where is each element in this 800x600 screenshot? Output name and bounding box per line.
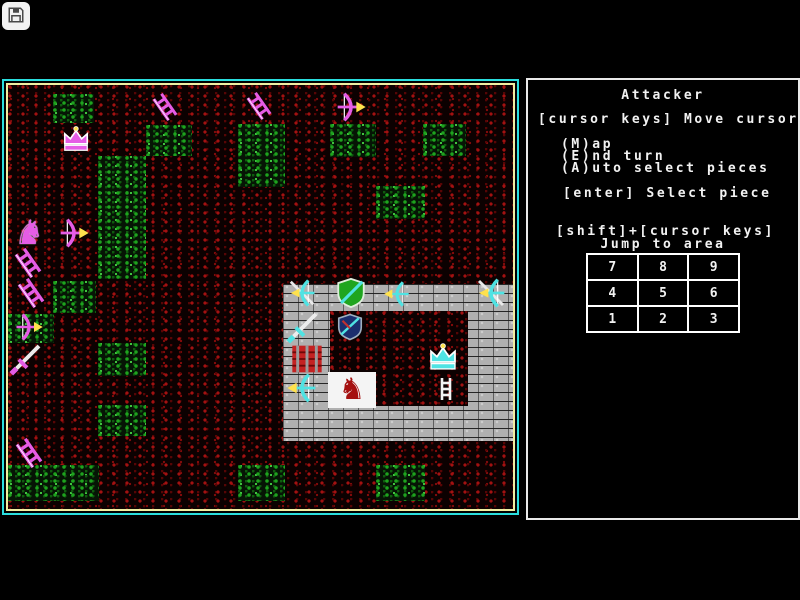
- screen: { "overlay": { "save_icon": "floppy-disk…: [0, 0, 800, 600]
- terrain-grass-patch: [98, 156, 146, 279]
- panel-title: Attacker: [528, 88, 798, 103]
- piece-ladderwhite-defender[interactable]: [434, 373, 458, 405]
- hint-select-piece: [enter] Select piece: [563, 186, 772, 201]
- piece-crown-attacker[interactable]: [56, 125, 96, 155]
- jump-cell-1[interactable]: 1: [587, 306, 638, 332]
- hint-move-cursor: [cursor keys] Move cursor: [538, 112, 799, 127]
- info-panel: Attacker [cursor keys] Move cursor (M)ap…: [526, 78, 800, 520]
- piece-bow-defender[interactable]: [279, 372, 325, 404]
- piece-bow-defender[interactable]: [377, 280, 417, 308]
- piece-bow-attacker[interactable]: [54, 217, 94, 249]
- piece-sword-defender[interactable]: [281, 308, 327, 344]
- piece-ladder-attacker[interactable]: [12, 438, 46, 468]
- save-button[interactable]: [2, 2, 30, 30]
- terrain-grass-patch: [376, 465, 425, 501]
- map-content[interactable]: ♞ ♞: [8, 85, 513, 509]
- piece-bow-attacker[interactable]: [332, 91, 370, 123]
- jump-grid: 789456123: [586, 253, 740, 333]
- terrain-grass-patch: [423, 124, 466, 156]
- hint-jump-label: Jump to area: [528, 237, 798, 252]
- piece-crown-defender[interactable]: [422, 342, 464, 374]
- terrain-grass-patch: [330, 124, 376, 157]
- piece-shielddark-defender[interactable]: [332, 312, 368, 342]
- map-inner-border: ♞ ♞: [6, 83, 515, 511]
- jump-cell-4[interactable]: 4: [587, 280, 638, 306]
- game-screen: ♞ ♞: [0, 76, 800, 524]
- terrain-grass-patch: [376, 186, 425, 219]
- piece-gate-defender[interactable]: [285, 343, 329, 375]
- terrain-grass-patch: [98, 405, 146, 436]
- piece-ladder-attacker[interactable]: [13, 278, 49, 308]
- piece-bowsword-defender[interactable]: [471, 277, 511, 309]
- map-frame: ♞ ♞: [2, 79, 519, 515]
- jump-cell-8[interactable]: 8: [638, 254, 689, 280]
- terrain-grass-patch: [8, 465, 99, 501]
- piece-sword-attacker[interactable]: [8, 340, 46, 376]
- terrain-grass-patch: [146, 125, 192, 156]
- piece-bow-attacker[interactable]: [8, 312, 50, 342]
- terrain-grass-patch: [53, 281, 96, 313]
- jump-cell-6[interactable]: 6: [688, 280, 739, 306]
- menu-item-auto-select: (A)uto select pieces: [561, 161, 770, 176]
- jump-cell-7[interactable]: 7: [587, 254, 638, 280]
- jump-cell-5[interactable]: 5: [638, 280, 689, 306]
- terrain-grass-patch: [238, 465, 285, 501]
- piece-ladder-attacker[interactable]: [148, 93, 182, 121]
- jump-cell-2[interactable]: 2: [638, 306, 689, 332]
- save-icon: [7, 6, 25, 27]
- terrain-grass-patch: [53, 94, 94, 123]
- piece-ladder-attacker[interactable]: [10, 248, 46, 278]
- piece-ladder-attacker[interactable]: [242, 92, 276, 120]
- jump-cell-9[interactable]: 9: [688, 254, 739, 280]
- terrain-grass-patch: [98, 343, 146, 376]
- piece-shieldgreen-defender[interactable]: [331, 276, 371, 310]
- piece-horsered-defender[interactable]: ♞: [328, 372, 376, 408]
- terrain-grass-patch: [238, 124, 285, 187]
- piece-horse-attacker[interactable]: ♞: [8, 215, 50, 251]
- piece-bowsword-defender[interactable]: [284, 278, 320, 308]
- jump-cell-3[interactable]: 3: [688, 306, 739, 332]
